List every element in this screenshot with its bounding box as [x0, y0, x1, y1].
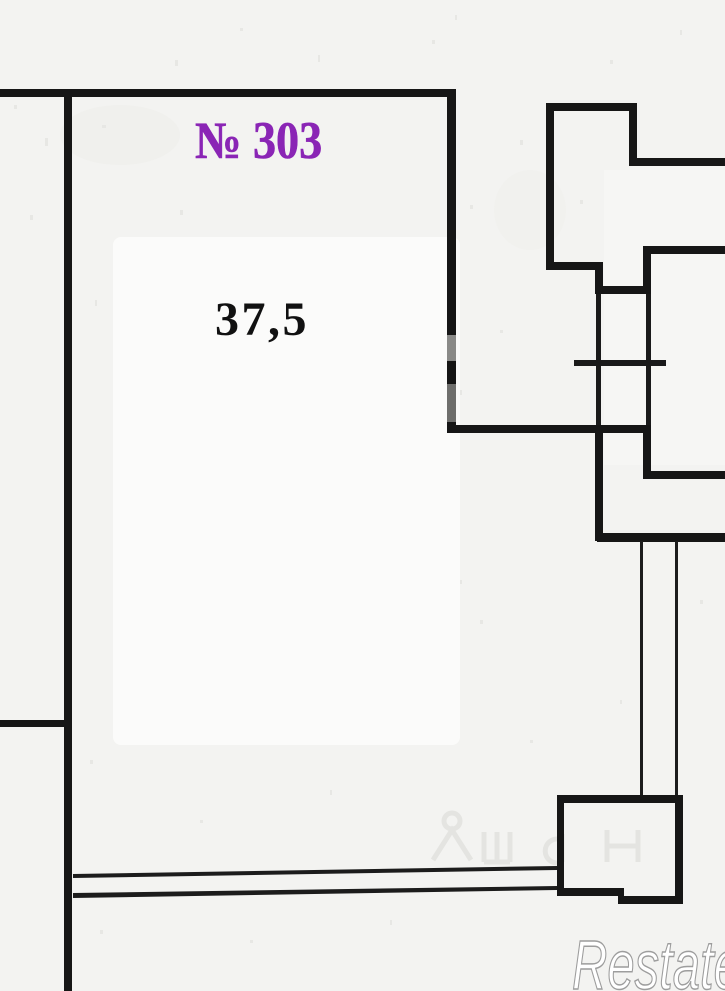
svg-text:№ 303: № 303: [195, 111, 322, 169]
svg-text:Restate: Restate: [572, 925, 725, 991]
svg-text:37,5: 37,5: [215, 293, 309, 346]
